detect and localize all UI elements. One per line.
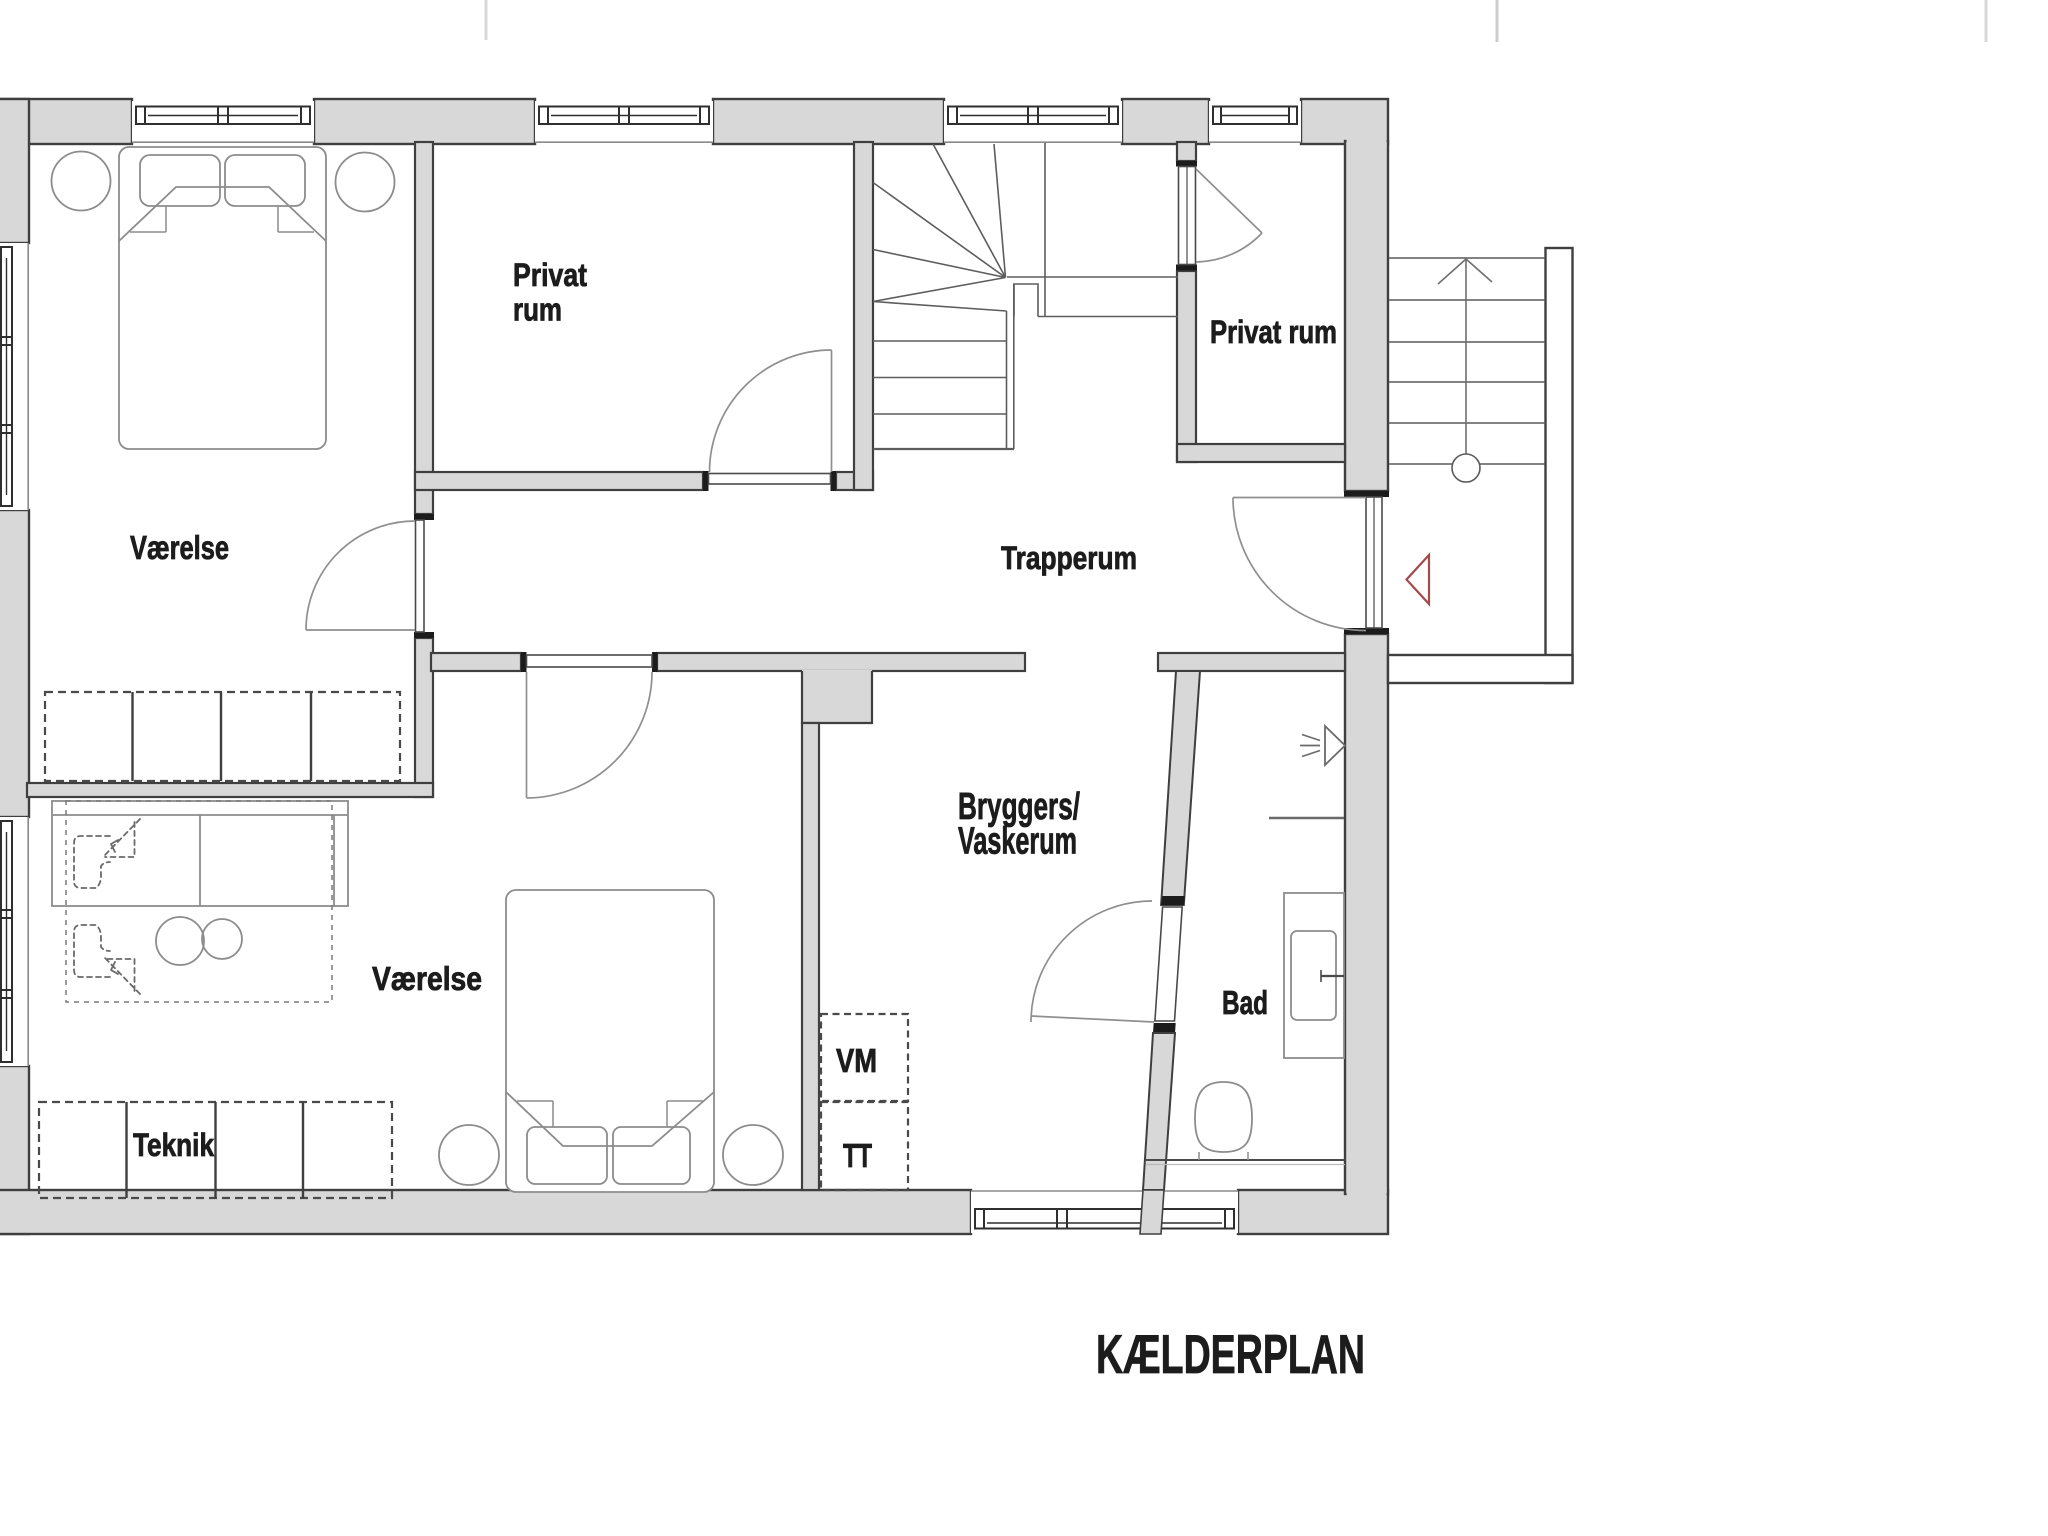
svg-text:Privat rum: Privat rum <box>1210 314 1337 350</box>
svg-text:VM: VM <box>836 1042 877 1079</box>
svg-text:TT: TT <box>843 1137 872 1174</box>
svg-text:KÆLDERPLAN: KÆLDERPLAN <box>1096 1323 1365 1385</box>
svg-text:Privat: Privat <box>513 257 587 293</box>
svg-text:rum: rum <box>513 292 562 328</box>
svg-text:Værelse: Værelse <box>372 960 482 997</box>
svg-text:Trapperum: Trapperum <box>1001 540 1137 576</box>
svg-text:Værelse: Værelse <box>130 529 229 566</box>
svg-text:Vaskerum: Vaskerum <box>958 821 1077 863</box>
svg-text:Teknik: Teknik <box>133 1127 214 1163</box>
svg-text:Bad: Bad <box>1222 984 1268 1021</box>
